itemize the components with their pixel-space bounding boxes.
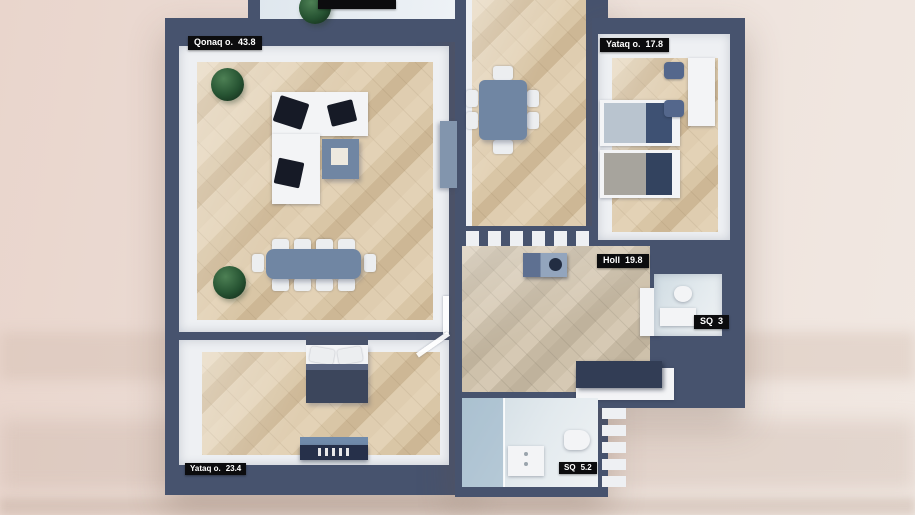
room-area: 19.8 [625, 256, 643, 266]
background-band [0, 498, 915, 515]
tv-stand [440, 121, 457, 188]
desk-chair [664, 62, 684, 79]
shower-cabin [462, 398, 504, 487]
dining-chair [252, 254, 264, 272]
room-name: SQ [700, 317, 713, 327]
room-label-wc: SQ 3 [694, 315, 729, 329]
dining-table [479, 80, 527, 140]
room-label-living: Qonaq o. 43.8 [188, 36, 262, 50]
partition-slot [576, 231, 589, 247]
dining-chair [493, 140, 513, 154]
coffee-table-top [331, 148, 348, 165]
long-dining-table [266, 249, 361, 279]
door-leaf [443, 296, 449, 334]
potted-plant-icon [213, 266, 246, 299]
potted-plant-icon [211, 68, 244, 101]
room-label-bathroom: SQ 5.2 [559, 462, 597, 474]
cabinet-knob [524, 452, 528, 456]
sink-counter [660, 308, 696, 326]
room-area: 5.2 [581, 464, 592, 473]
partition-slot [554, 231, 567, 247]
twin-bed-pillow [646, 153, 672, 195]
room-name: Yataq o. [606, 40, 641, 50]
room-area: 17.8 [646, 40, 664, 50]
bed-blanket-fold [306, 364, 368, 370]
dining-chair [466, 90, 478, 107]
room-label-bedroom-bl: Yataq o. 23.4 [185, 463, 246, 475]
partition-slot [510, 231, 523, 247]
shower-glass [503, 398, 505, 487]
room-name: Qonaq o. [194, 38, 233, 48]
room-area: 3 [718, 317, 723, 327]
toilet [674, 286, 692, 302]
dining-chair [527, 112, 539, 129]
room-label-hall: Holl 19.8 [597, 254, 649, 268]
room-area: 43.8 [238, 38, 256, 48]
twin-bed-blanket [604, 103, 646, 143]
partition-slot [466, 231, 479, 247]
radiator-slot [602, 476, 626, 487]
dining-chair [272, 278, 289, 291]
storage-bench-top [576, 361, 662, 388]
floor-plan-scene: Qonaq o. 43.8 Yataq o. 17.8 Holl 19.8 SQ… [0, 0, 915, 515]
room-name: SQ [564, 464, 576, 473]
room-name: Holl [603, 256, 620, 266]
partition-slot [488, 231, 501, 247]
radiator-slot [602, 408, 626, 419]
room-area: 23.4 [226, 465, 242, 474]
dining-chair [466, 112, 478, 129]
washing-machine-door [549, 258, 562, 271]
radiator-slot [602, 442, 626, 453]
bathroom-cabinet [508, 446, 544, 476]
partition-slot [532, 231, 545, 247]
desk-chair [664, 100, 684, 117]
room-label-bedroom-tr: Yataq o. 17.8 [600, 38, 669, 52]
radiator-slot [602, 459, 626, 470]
radiator-slot [602, 425, 626, 436]
dining-chair [493, 66, 513, 80]
room-name: Yataq o. [190, 465, 221, 474]
cabinet-knob [524, 462, 528, 466]
dining-chair [316, 278, 333, 291]
dining-chair [364, 254, 376, 272]
dining-chair [338, 278, 355, 291]
dining-chair [294, 278, 311, 291]
twin-bed-blanket [604, 153, 646, 195]
balcony-label-cutoff [318, 0, 396, 9]
sofa-pillow [274, 158, 305, 189]
toilet [564, 430, 590, 450]
dresser-items [318, 448, 352, 456]
dining-chair [527, 90, 539, 107]
desk [688, 58, 715, 126]
